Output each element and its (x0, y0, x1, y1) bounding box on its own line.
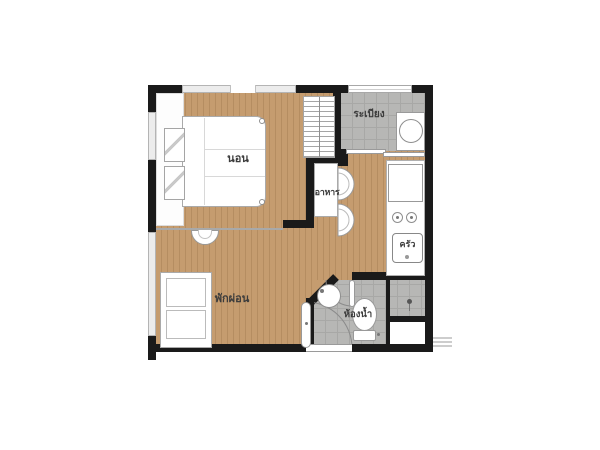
wall-bottom-right (352, 344, 433, 352)
wall-top-mid (296, 85, 348, 93)
living-window-left (148, 232, 156, 336)
bathroom-sink (317, 284, 341, 308)
floor-plan: นอน ระเบียง อาหาร ครัว พักผ่อน ห้องน้ำ (0, 0, 600, 450)
window-mullion (230, 85, 256, 93)
room-label-dining: อาหาร (308, 187, 346, 198)
stove-burner-dot (410, 216, 413, 219)
wall-right (425, 85, 433, 352)
room-label-bedroom: นอน (208, 153, 268, 166)
wall-left-1 (148, 85, 156, 112)
wall-left-2 (148, 160, 156, 232)
bedroom-living-partition (156, 228, 283, 230)
stove-burner-dot (396, 216, 399, 219)
room-label-kitchen: ครัว (392, 239, 423, 250)
wall-dining-bottom (283, 220, 314, 228)
ac-ledge-wall-top (386, 316, 433, 322)
ac-ledge (390, 322, 425, 344)
toilet-tank (353, 330, 376, 341)
pillow (164, 166, 185, 200)
shower-stem (409, 304, 410, 311)
wardrobe (303, 96, 335, 158)
door-handle (305, 322, 308, 325)
entrance-door-leaf (301, 302, 311, 348)
room-label-balcony: ระเบียง (343, 109, 395, 121)
sink-faucet (320, 289, 324, 293)
bedroom-window-left (148, 112, 156, 160)
sofa-cushion (166, 310, 206, 339)
bed-seam (205, 176, 265, 177)
room-label-bathroom: ห้องน้ำ (329, 309, 387, 320)
balcony-railing (348, 85, 412, 93)
balcony-sliding-door (383, 152, 425, 157)
bed-seam (205, 149, 265, 150)
sink-drain (405, 255, 409, 259)
toilet-flush (377, 333, 380, 336)
room-label-living: พักผ่อน (198, 293, 266, 306)
bed-post (259, 199, 265, 205)
refrigerator (388, 164, 423, 202)
pillow (164, 128, 185, 162)
entrance-threshold (306, 344, 352, 352)
washing-machine-drum (399, 119, 423, 143)
duvet-fold-line (204, 118, 205, 205)
balcony-sliding-door (346, 149, 386, 154)
bed-post (259, 118, 265, 124)
